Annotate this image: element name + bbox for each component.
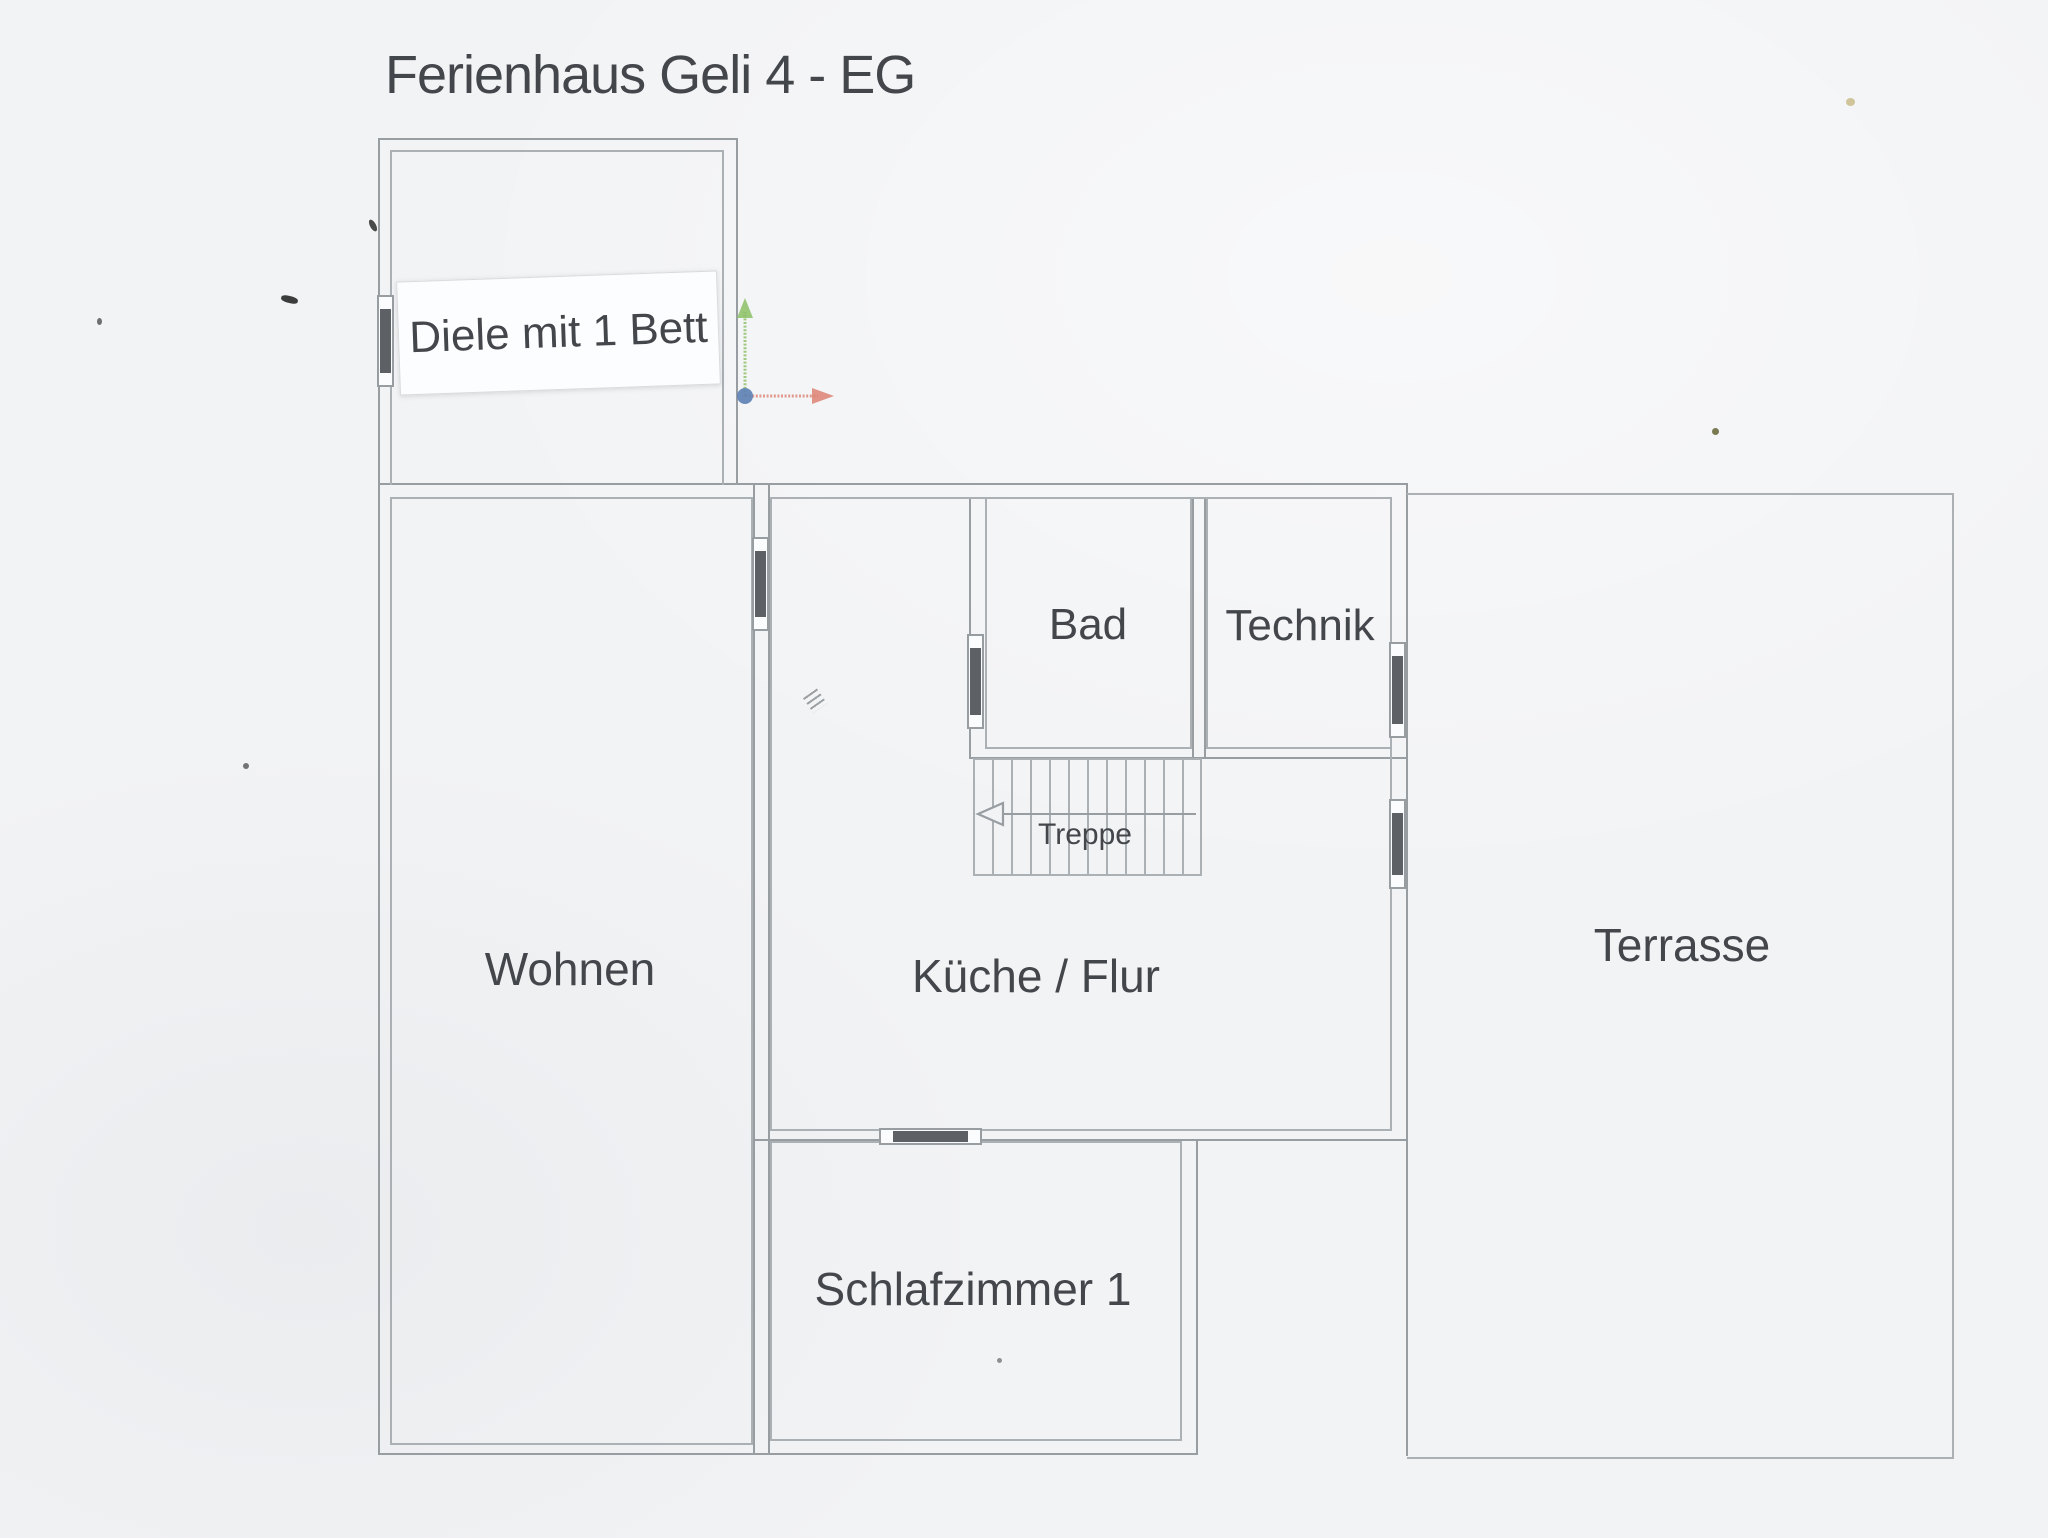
wall-house-bottom bbox=[378, 1453, 1198, 1455]
wall-diele-top bbox=[378, 138, 736, 140]
window-technik-right bbox=[1389, 642, 1406, 738]
wall-house-left bbox=[378, 483, 380, 1455]
coordinate-axes-icon bbox=[698, 296, 848, 416]
door-kueche-terrasse bbox=[1389, 799, 1406, 889]
room-label-diele: Diele mit 1 Bett bbox=[396, 270, 721, 395]
plan-title: Ferienhaus Geli 4 - EG bbox=[385, 44, 915, 106]
room-label-terrasse: Terrasse bbox=[1594, 918, 1770, 972]
stairs-treppe bbox=[973, 758, 1202, 876]
room-label-wohnen: Wohnen bbox=[485, 942, 656, 996]
scan-speck bbox=[1712, 428, 1719, 435]
wall-schlafzimmer-right-outer bbox=[1196, 1139, 1198, 1455]
room-label-treppe: Treppe bbox=[1038, 818, 1132, 852]
room-label-schlafzimmer: Schlafzimmer 1 bbox=[815, 1262, 1132, 1316]
stairs-direction-left-arrow-icon bbox=[974, 799, 1006, 829]
door-schlafzimmer bbox=[879, 1128, 982, 1145]
door-wohnen-kueche bbox=[752, 537, 769, 631]
scan-speck bbox=[97, 318, 102, 325]
room-label-diele-text: Diele mit 1 Bett bbox=[409, 303, 709, 363]
scan-speck bbox=[243, 763, 249, 769]
window-diele-left bbox=[377, 295, 394, 387]
room-terrasse bbox=[1407, 493, 1954, 1459]
scan-speck bbox=[997, 1358, 1002, 1363]
scan-speck bbox=[280, 294, 298, 305]
room-label-bad: Bad bbox=[1049, 600, 1127, 650]
room-label-kueche-flur: Küche / Flur bbox=[912, 949, 1160, 1003]
room-label-technik: Technik bbox=[1225, 601, 1374, 651]
scan-speck bbox=[367, 218, 378, 232]
door-bad bbox=[967, 634, 984, 729]
stairs-direction-line bbox=[1002, 813, 1196, 815]
floor-plan-scan: Ferienhaus Geli 4 - EG Diele mit 1 bbox=[0, 0, 2048, 1538]
scan-speck bbox=[1846, 98, 1855, 106]
